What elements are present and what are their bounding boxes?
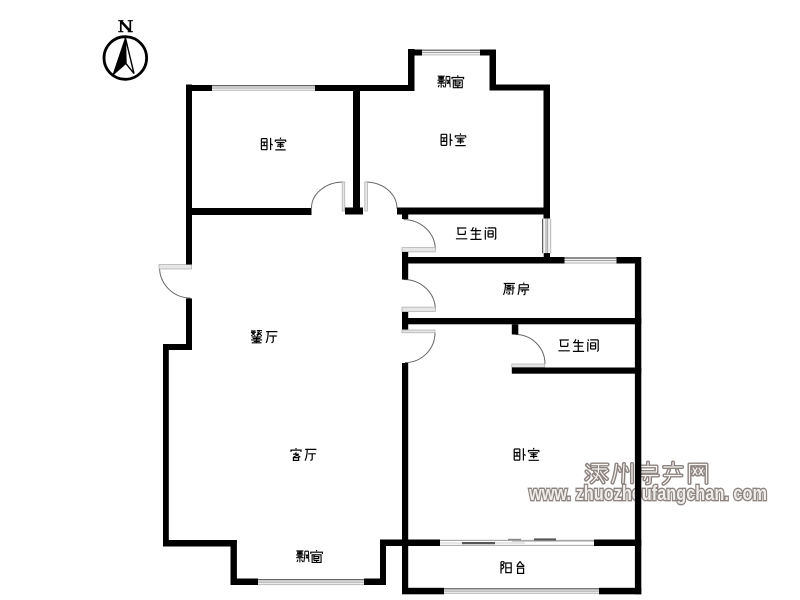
svg-text:www. zhuozhoufangchan. com: www. zhuozhoufangchan. com	[528, 483, 767, 505]
